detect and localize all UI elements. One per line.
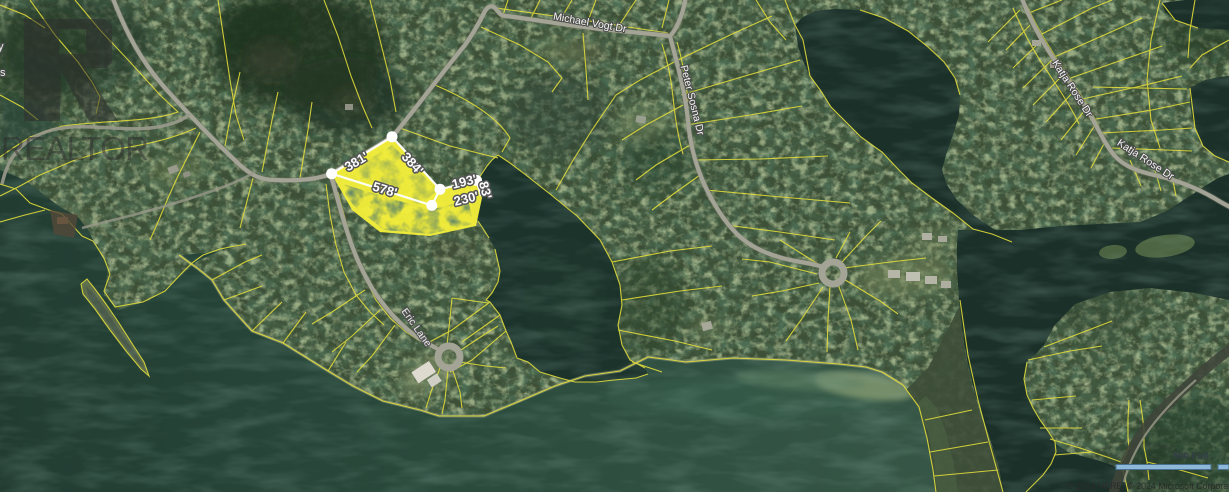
svg-text:y: y <box>0 41 4 53</box>
svg-text:© 2024 HERE, © 2024 Microsoft: © 2024 HERE, © 2024 Microsoft Corporati <box>1067 481 1229 491</box>
svg-text:REALTOR: REALTOR <box>1 130 149 167</box>
svg-text:500 Fuß: 500 Fuß <box>1173 451 1209 462</box>
svg-text:s: s <box>0 67 6 79</box>
